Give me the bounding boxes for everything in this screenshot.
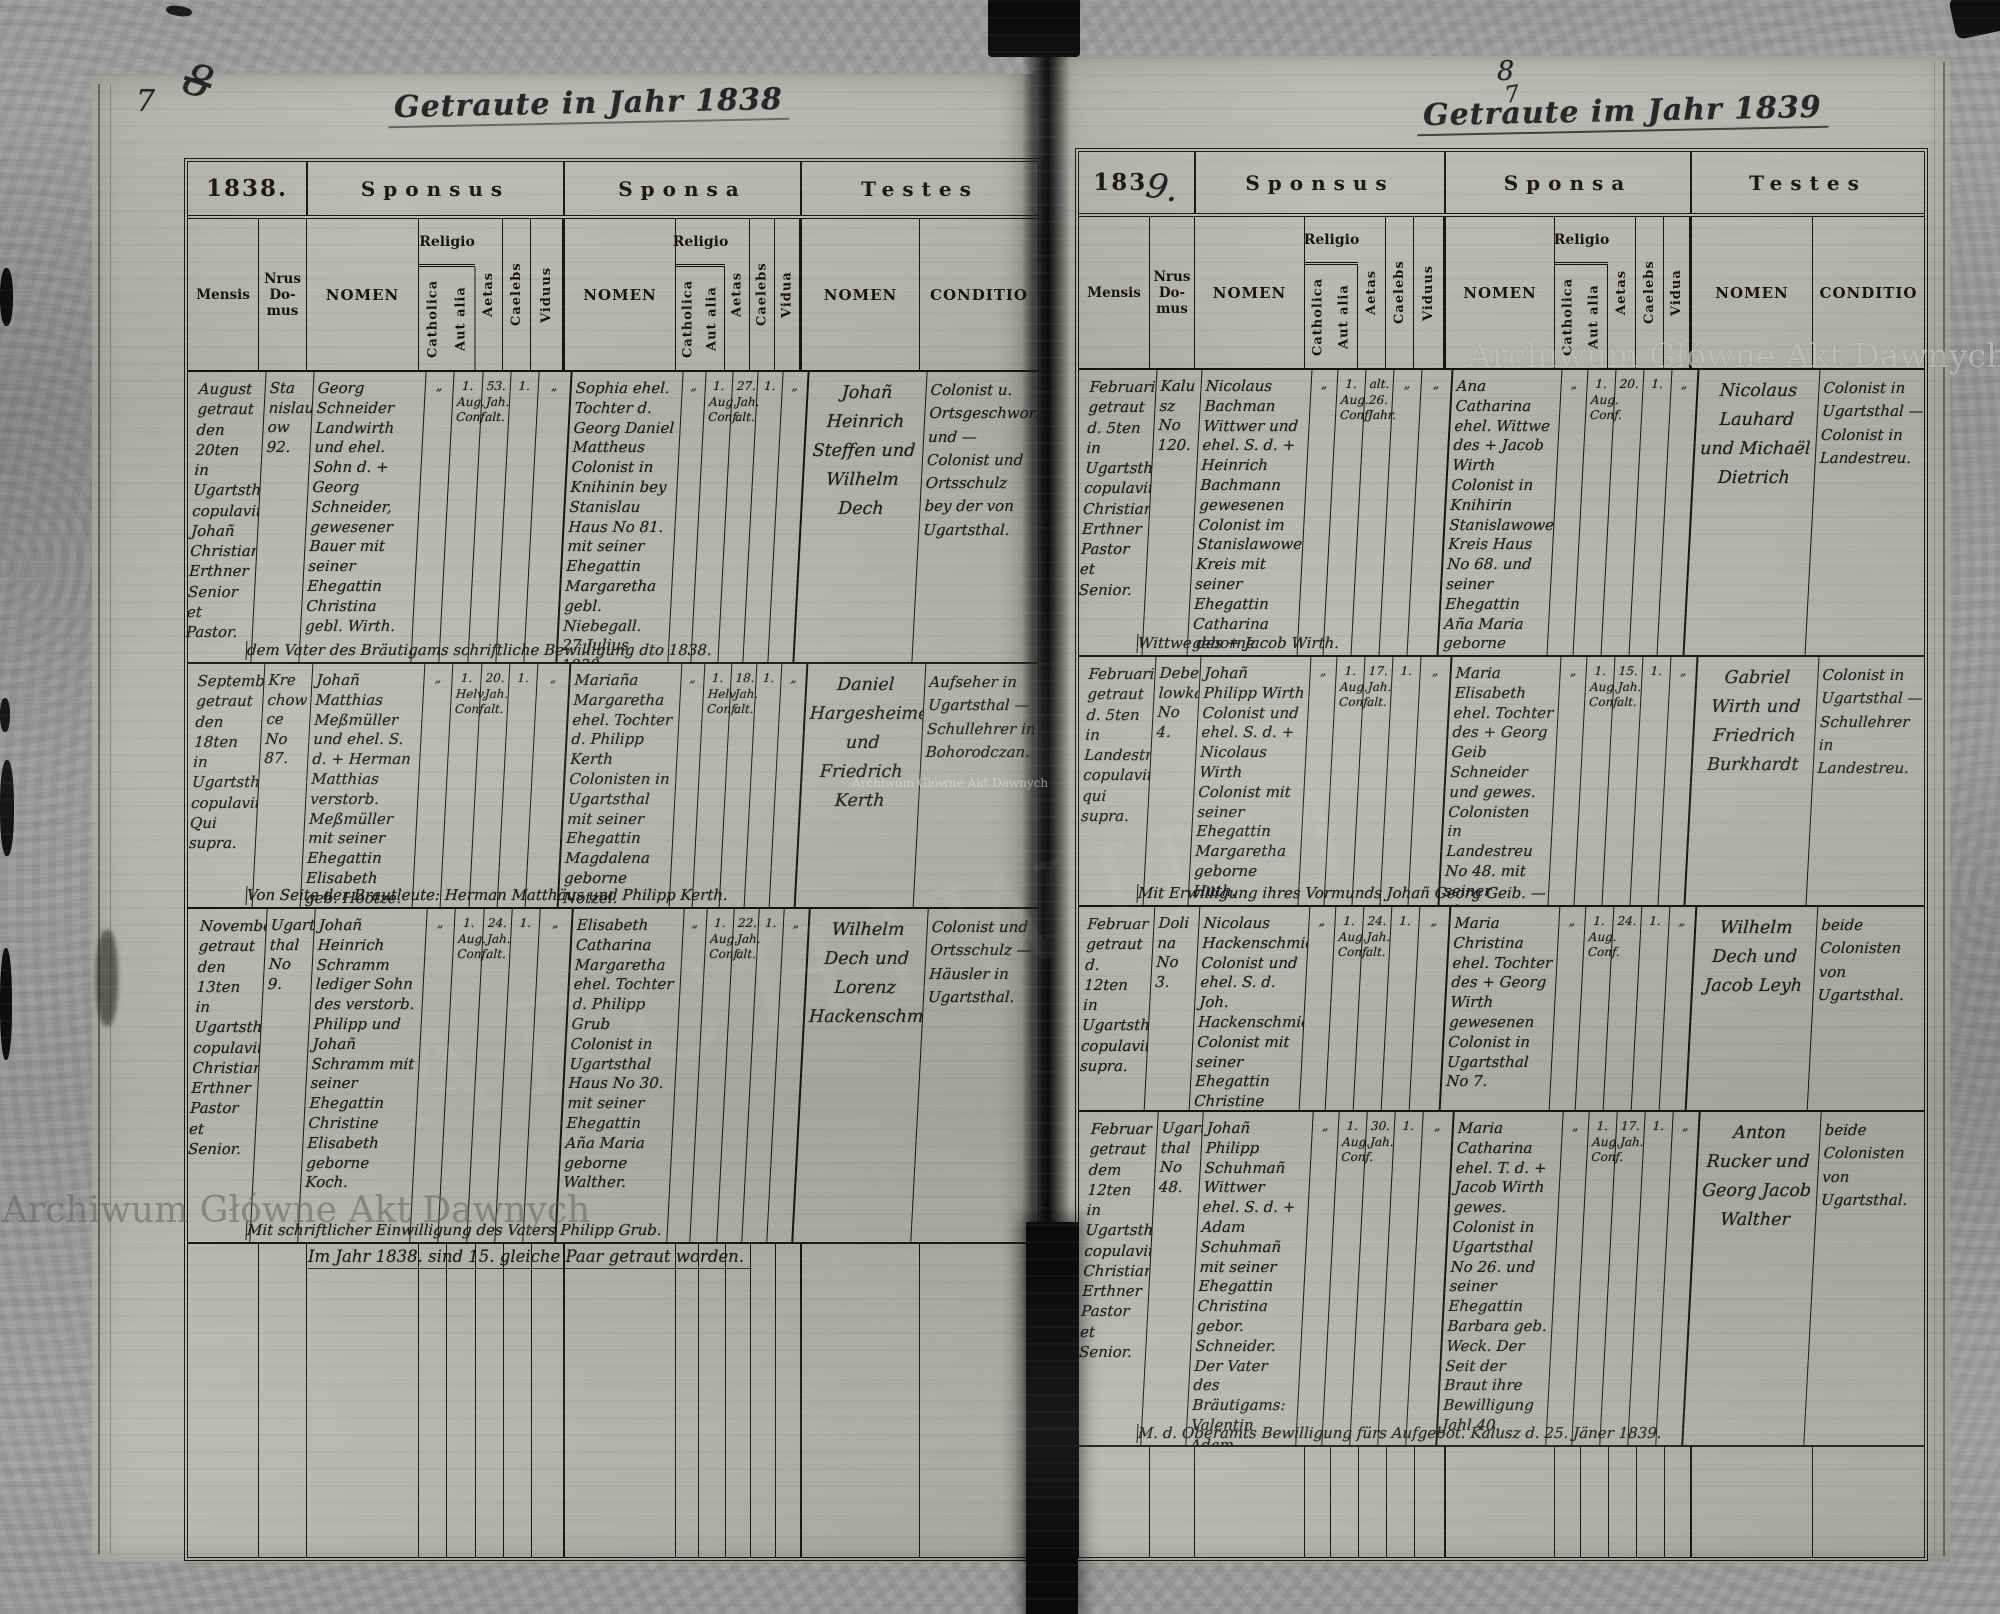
header-religio: Religio xyxy=(1555,217,1608,265)
marriage-register-table-1838: 1838. Sponsus Sponsa Testes Mensis Nrus … xyxy=(184,158,1042,1561)
header-groom-name: NOMEN xyxy=(306,219,418,370)
scan-artifact xyxy=(96,930,118,1026)
cell-witnesses-condition: Colonist in Ugartsthal — Colonist in Lan… xyxy=(1805,370,1932,655)
ruled-cell xyxy=(1149,1447,1194,1557)
header-sponsus: Sponsus xyxy=(1194,152,1444,213)
row-note: Mit schriftlicher Einwilligung des Vater… xyxy=(246,1221,807,1240)
header-vidua: Vidua xyxy=(1664,217,1690,368)
scan-artifact xyxy=(0,698,10,732)
scan-artifact xyxy=(0,268,13,326)
cell-witnesses-condition: Colonist in Ugartsthal — Schullehrer in … xyxy=(1806,657,1931,905)
header-testes: Testes xyxy=(1690,152,1924,213)
cell-bride-name: Maria Catharina ehel. T. d. + Jacob Wirt… xyxy=(1435,1112,1562,1445)
ruled-cell xyxy=(675,1289,698,1557)
cell-witnesses-condition: beide Colonisten von Ugartsthal. xyxy=(1803,1112,1932,1445)
header-aut-alia: Aut alia xyxy=(447,267,476,370)
ruled-cell xyxy=(446,1289,475,1557)
ruled-cell xyxy=(1358,1447,1386,1557)
cell-bride-name: Sophia ehel. Tochter d. Georg Daniel Mat… xyxy=(555,372,682,662)
ruled-cell xyxy=(475,1289,503,1557)
header-aetas: Aetas xyxy=(1608,217,1636,368)
header-religio: Religio xyxy=(419,219,475,267)
header-vidua: Vidua xyxy=(775,219,800,370)
cell-groom-name: Johañ Heinrich Schramm lediger Sohn des … xyxy=(297,909,426,1242)
table-header-sections: 1838. Sponsus Sponsa Testes xyxy=(188,162,1038,219)
table-row: November getraut den 13ten in Ugartsthal… xyxy=(188,909,1038,1244)
ruled-cell xyxy=(725,1289,750,1557)
ruled-cell xyxy=(1444,1447,1554,1557)
row-note: Von Seite der Brautleute: Herman Matthäu… xyxy=(246,886,807,905)
ruled-cell xyxy=(1554,1447,1580,1557)
header-aetas: Aetas xyxy=(1358,217,1386,368)
page-title: Getraute in Jahr 1838 xyxy=(388,82,790,128)
ruled-cell xyxy=(188,1289,258,1557)
ruled-cell xyxy=(418,1289,446,1557)
ruled-cell xyxy=(1636,1447,1664,1557)
spine-shadow-top xyxy=(988,0,1080,57)
header-mensis: Mensis xyxy=(188,219,258,370)
header-catholica: Catholica xyxy=(1555,265,1581,368)
row-note: dem Vater des Bräutigams schriftliche Be… xyxy=(246,641,807,660)
header-house-number: Nrus Do- mus xyxy=(258,219,306,370)
scan-artifact xyxy=(165,4,192,18)
header-religio: Religio xyxy=(1305,217,1358,265)
cell-witnesses-names: Wilhelm Dech und Lorenz Hackenschmied xyxy=(791,909,927,1242)
ruled-cell xyxy=(1194,1447,1304,1557)
left-page: 7 8 Getraute in Jahr 1838 1838. Sponsus … xyxy=(92,74,1035,1562)
header-caelebs: Caelebs xyxy=(750,219,775,370)
header-catholica: Catholica xyxy=(1305,265,1331,368)
header-year: 1839. xyxy=(1079,152,1194,213)
ruled-cell xyxy=(1812,1447,1924,1557)
ruled-cell xyxy=(188,1244,258,1289)
ruled-cell xyxy=(1580,1447,1608,1557)
header-year: 1838. xyxy=(188,162,306,215)
ruled-cell xyxy=(503,1289,531,1557)
header-aetas: Aetas xyxy=(725,219,750,370)
ruled-cell xyxy=(531,1289,563,1557)
cell-groom-name: Johañ Philipp Wirth Colonist und ehel. S… xyxy=(1188,657,1311,905)
right-page: 8 7 Getraute im Jahr 1839 1839. Sponsus … xyxy=(1045,56,1950,1562)
cell-witnesses-names: Gabriel Wirth und Friedrich Burkhardt xyxy=(1684,657,1819,905)
cell-groom-name: Johañ Matthias Meßmüller und ehel. S. d.… xyxy=(300,664,425,907)
header-groom-name: NOMEN xyxy=(1194,217,1304,368)
header-bride-name: NOMEN xyxy=(1444,217,1554,368)
ruled-cell xyxy=(306,1289,418,1557)
scan-artifact xyxy=(1948,0,2000,40)
table-row: Februar getraut dem 12ten in Ugartsthal.… xyxy=(1079,1112,1924,1447)
ruled-cell xyxy=(1664,1447,1690,1557)
header-sponsa: Sponsa xyxy=(1444,152,1690,213)
ruled-cell xyxy=(919,1289,1038,1557)
header-sponsus: Sponsus xyxy=(306,162,563,215)
cell-groom-name: Johañ Philipp Schuhmañ Wittwer ehel. S. … xyxy=(1185,1112,1312,1445)
header-religio: Religio xyxy=(676,219,725,267)
table-header-sections: 1839. Sponsus Sponsa Testes xyxy=(1079,152,1924,217)
cell-bride-name: Elisabeth Catharina Margaretha ehel. Toc… xyxy=(554,909,683,1242)
header-catholica: Catholica xyxy=(419,267,447,370)
header-viduus: Viduus xyxy=(1414,217,1444,368)
cell-bride-name: Mariaña Margaretha ehel. Tochter d. Phil… xyxy=(557,664,682,907)
table-row: Februarius getraut d. 5ten in Ugartsthal… xyxy=(1079,370,1924,657)
ruled-cell xyxy=(1386,1447,1414,1557)
cell-month: Februar getraut d. 12ten in Ugartsthal. … xyxy=(1074,907,1155,1110)
table-header-columns: Mensis Nrus Do- mus NOMEN Religio Cathol… xyxy=(1079,217,1924,370)
ruled-cell xyxy=(1079,1447,1149,1557)
cell-witnesses-names: Wilhelm Dech und Jacob Leyh xyxy=(1685,907,1818,1110)
ruled-cell xyxy=(1330,1447,1358,1557)
cell-witnesses-names: Johañ Heinrich Steffen und Wilhelm Dech xyxy=(792,372,926,662)
header-testes: Testes xyxy=(800,162,1038,215)
cell-witnesses-names: Nicolaus Lauhard und Michaël Dietrich xyxy=(1683,370,1820,655)
ruled-cell xyxy=(775,1244,800,1289)
header-catholica: Catholica xyxy=(676,267,700,370)
ruled-extension xyxy=(188,1289,1038,1557)
ruled-cell xyxy=(750,1244,775,1289)
cell-bride-name: Ana Catharina ehel. Wittwe des + Jacob W… xyxy=(1437,370,1562,655)
cell-witnesses-condition: beide Colonisten von Ugartsthal. xyxy=(1807,907,1930,1110)
ruled-cell xyxy=(1608,1447,1636,1557)
ruled-cell xyxy=(258,1244,306,1289)
header-witnesses-name: NOMEN xyxy=(1690,217,1812,368)
table-row: September getraut den 18ten in Ugartstha… xyxy=(188,664,1038,909)
header-caelebs: Caelebs xyxy=(1386,217,1414,368)
header-conditio: CONDITIO xyxy=(1812,217,1924,368)
rows-container: Februarius getraut d. 5ten in Ugartsthal… xyxy=(1079,370,1924,1447)
scan-artifact xyxy=(0,948,12,1060)
ruled-cell xyxy=(1690,1447,1812,1557)
ruled-cell xyxy=(800,1289,919,1557)
religio-group: Religio Catholica Aut alia xyxy=(1304,217,1358,368)
row-note: M. d. Oberamts Bewilligung fürs Aufgebot… xyxy=(1137,1424,1698,1443)
cell-groom-name: Georg Schneider Landwirth und ehel. Sohn… xyxy=(298,372,425,662)
ruled-cell xyxy=(258,1289,306,1557)
page-number: 7 xyxy=(136,84,155,119)
header-house-number: Nrus Do- mus xyxy=(1149,217,1194,368)
ink-scribble: 8 xyxy=(177,53,219,110)
ruled-cell xyxy=(1304,1447,1330,1557)
spine-shadow-bottom xyxy=(1026,1222,1078,1614)
religio-group: Religio Catholica Aut alia xyxy=(418,219,475,370)
header-conditio: CONDITIO xyxy=(919,219,1038,370)
cell-witnesses-names: Daniel Hargesheimer und Friedrich Kerth xyxy=(794,664,926,907)
header-witnesses-name: NOMEN xyxy=(800,219,919,370)
religio-group: Religio Catholica Aut alia xyxy=(675,219,725,370)
cell-witnesses-names: Anton Rucker und Georg Jacob Walther xyxy=(1681,1112,1820,1445)
cell-bride-name: Maria Christina ehel. Tochter des + Geor… xyxy=(1439,907,1560,1110)
table-row: Februar getraut d. 12ten in Ugartsthal. … xyxy=(1079,907,1924,1112)
marriage-register-table-1839: 1839. Sponsus Sponsa Testes Mensis Nrus … xyxy=(1075,148,1928,1561)
header-mensis: Mensis xyxy=(1079,217,1149,368)
header-aetas: Aetas xyxy=(475,219,503,370)
page-title: Getraute im Jahr 1839 xyxy=(1417,90,1829,137)
summary-row: Im Jahr 1838. sind 15. gleiche Paar getr… xyxy=(188,1244,1038,1289)
header-viduus: Viduus xyxy=(531,219,563,370)
ruled-cell xyxy=(698,1289,725,1557)
header-sponsa: Sponsa xyxy=(563,162,800,215)
header-caelebs: Caelebs xyxy=(503,219,531,370)
cell-month: Februarius getraut d. 5ten in Landestreu… xyxy=(1073,657,1156,905)
table-header-columns: Mensis Nrus Do- mus NOMEN Religio Cathol… xyxy=(188,219,1038,372)
ruled-cell xyxy=(800,1244,919,1289)
cell-groom-name: Nicolaus Hackenschmied Colonist und ehel… xyxy=(1189,907,1310,1110)
cell-groom-name: Nicolaus Bachman Wittwer und ehel. S. d.… xyxy=(1187,370,1312,655)
ruled-extension xyxy=(1079,1447,1924,1557)
header-caelebs: Caelebs xyxy=(1636,217,1664,368)
scanned-register-spread: 7 8 Getraute in Jahr 1838 1838. Sponsus … xyxy=(0,0,2000,1614)
table-row: August getraut den 20ten in Ugartsthal. … xyxy=(188,372,1038,664)
ruled-cell xyxy=(1414,1447,1444,1557)
row-note: Wittwe des + Jacob Wirth. xyxy=(1137,634,1698,653)
ruled-cell xyxy=(750,1289,775,1557)
summary-line: Im Jahr 1838. sind 15. gleiche Paar getr… xyxy=(308,1247,752,1269)
table-row: Februarius getraut d. 5ten in Landestreu… xyxy=(1079,657,1924,907)
cell-bride-name: Maria Elisabeth ehel. Tochter des + Geor… xyxy=(1438,657,1561,905)
cell-month: September getraut den 18ten in Ugartstha… xyxy=(182,664,265,907)
ruled-cell xyxy=(919,1244,1038,1289)
handwritten-year-digit: 9. xyxy=(1143,165,1182,210)
ruled-cell xyxy=(775,1289,800,1557)
header-aut-alia: Aut alia xyxy=(1331,265,1358,368)
header-aut-alia: Aut alia xyxy=(1581,265,1608,368)
rows-container: August getraut den 20ten in Ugartsthal. … xyxy=(188,372,1038,1244)
row-note: Mit Erwilligung ihres Vormunds Johañ Geo… xyxy=(1137,884,1698,903)
ruled-cell xyxy=(563,1289,675,1557)
header-aut-alia: Aut alia xyxy=(700,267,725,370)
scan-artifact xyxy=(0,760,14,856)
religio-group: Religio Catholica Aut alia xyxy=(1554,217,1608,368)
header-bride-name: NOMEN xyxy=(563,219,675,370)
